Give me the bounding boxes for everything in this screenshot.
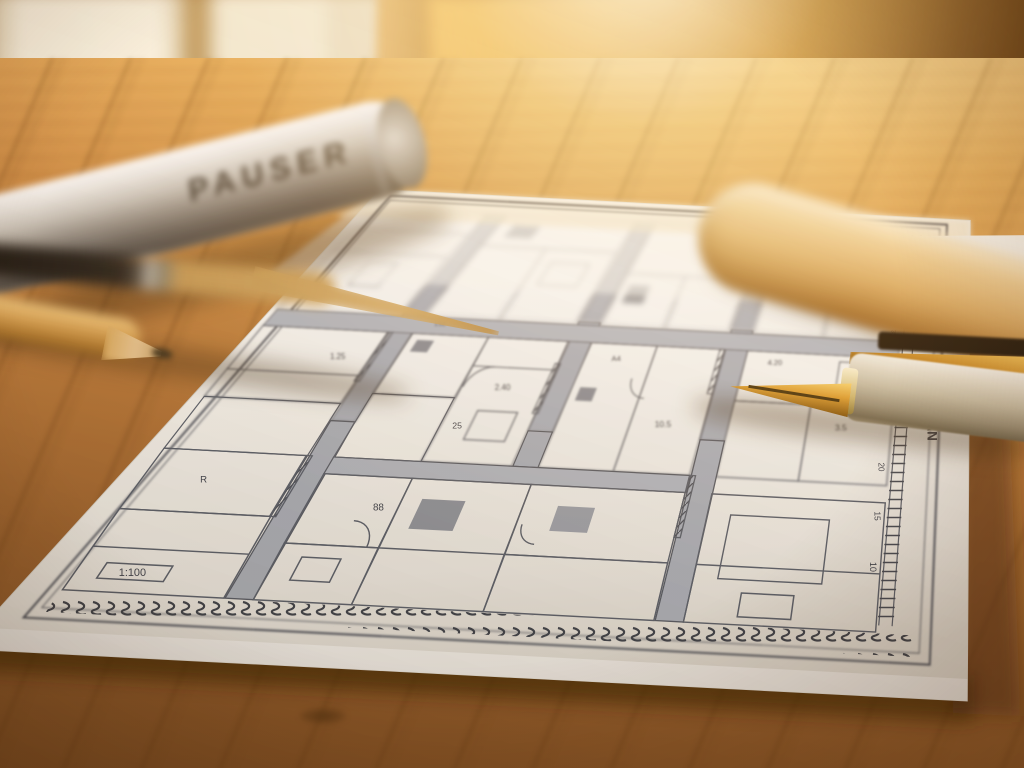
vignette-overlay [0,0,1024,768]
photo-scene: 1522.40A410.53.51.254.20 454035302520151… [0,0,1024,768]
